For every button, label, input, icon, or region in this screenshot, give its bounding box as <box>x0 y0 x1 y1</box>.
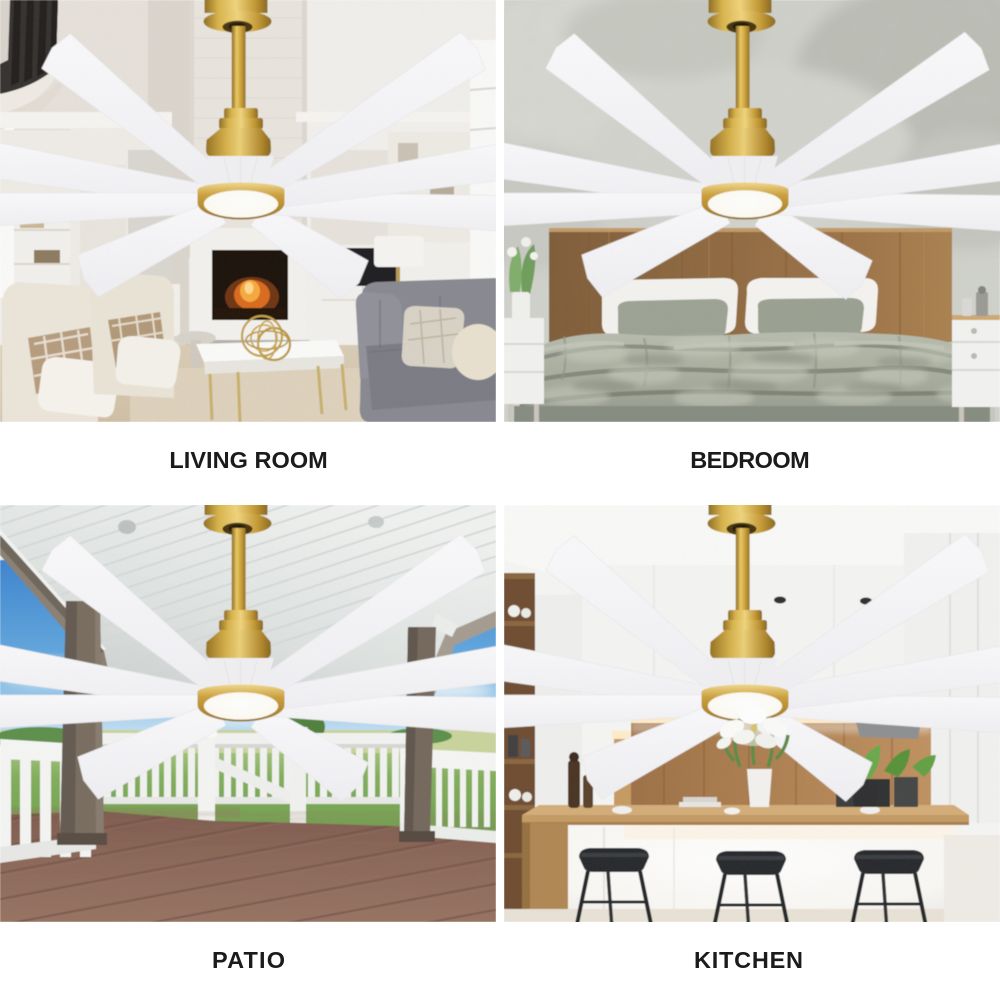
svg-text:PATIO: PATIO <box>212 947 286 973</box>
svg-text:LIVING ROOM: LIVING ROOM <box>169 447 327 473</box>
svg-text:BEDROOM: BEDROOM <box>690 447 809 473</box>
svg-text:KITCHEN: KITCHEN <box>694 947 804 973</box>
